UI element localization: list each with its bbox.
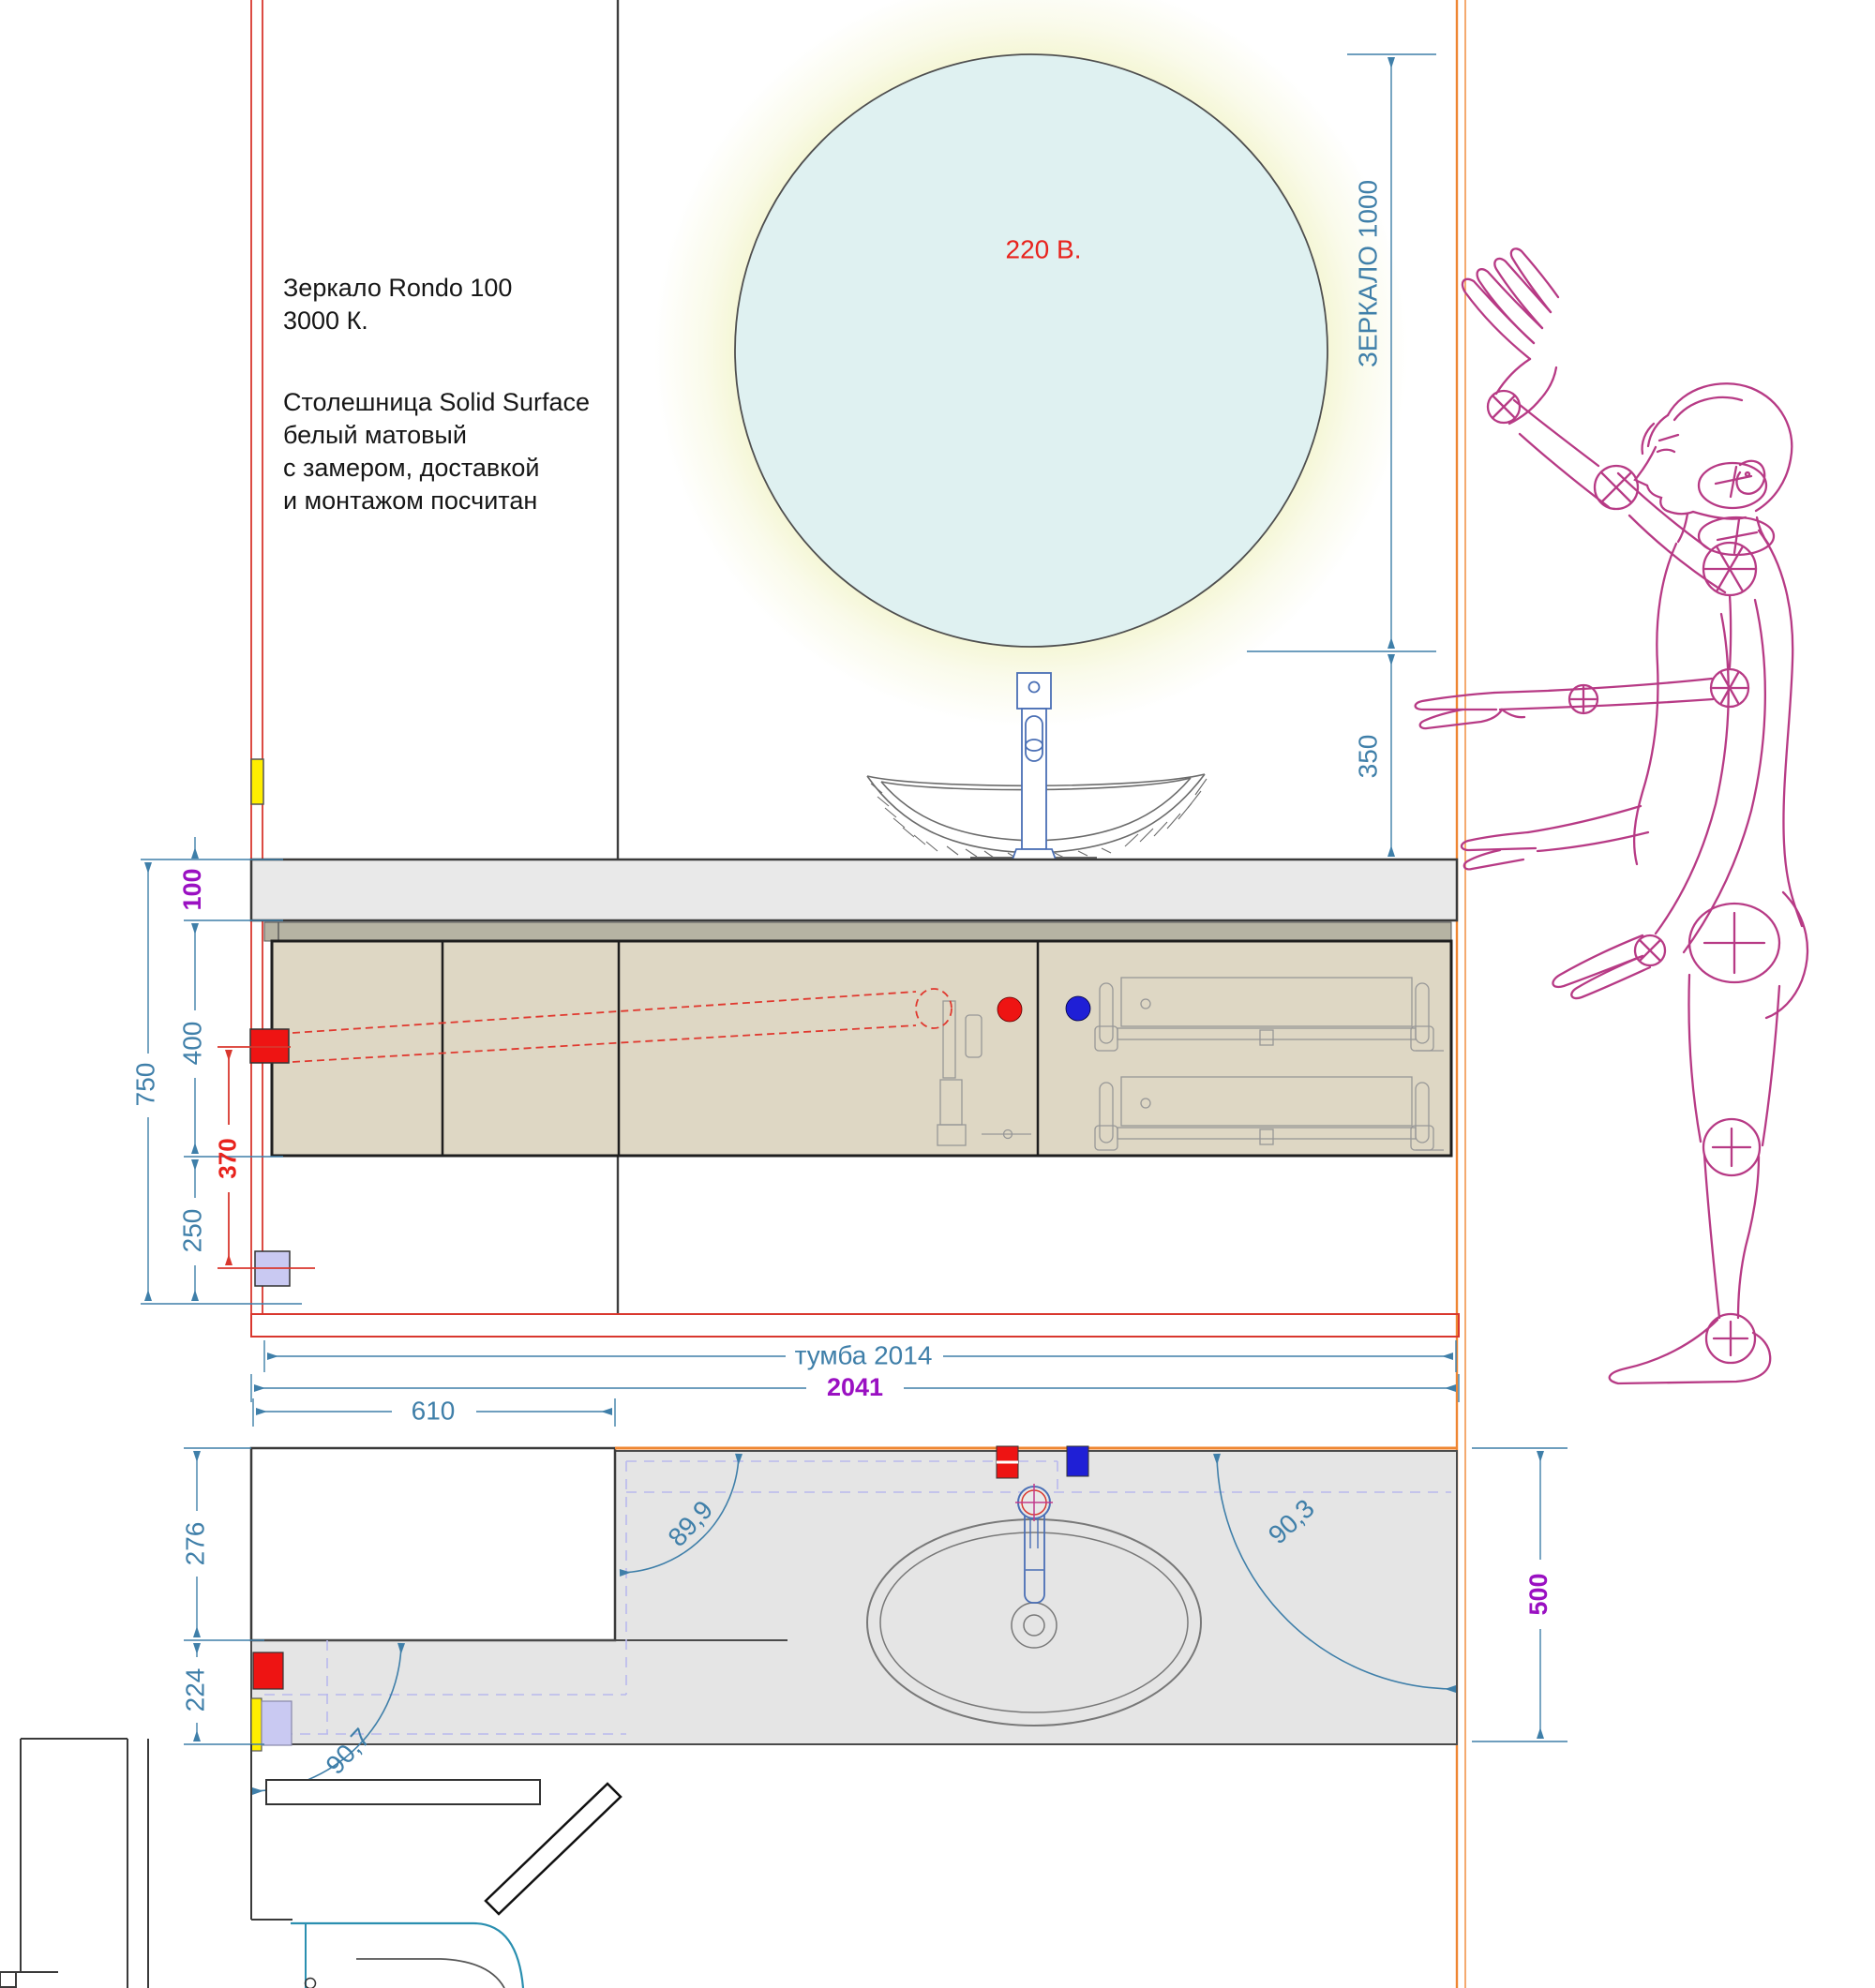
threshold-rail	[266, 1780, 540, 1804]
dim-label-610: 610	[412, 1398, 456, 1427]
dim-label-224: 224	[182, 1668, 211, 1712]
room-walls-plan	[0, 1739, 292, 1988]
socket-lilac-plan	[262, 1701, 292, 1745]
socket-yellow-plan	[251, 1698, 262, 1751]
dim-label-500: 500	[1525, 1573, 1553, 1615]
mannequin-figure	[1416, 248, 1807, 1383]
socket-blue-plan	[1067, 1446, 1088, 1476]
dim-label-400: 400	[179, 1022, 208, 1066]
socket-red-plan-left	[253, 1652, 283, 1689]
hot-water-dot	[997, 997, 1022, 1022]
round-mirror	[735, 54, 1327, 647]
dim-label-350: 350	[1355, 735, 1384, 779]
left-wall-lines	[251, 0, 262, 1314]
vanity-cabinet	[272, 941, 1451, 1156]
cold-water-dot	[1066, 996, 1090, 1021]
dim-label-276: 276	[182, 1522, 211, 1566]
note-countertop-spec: Столешница Solid Surface белый матовый с…	[283, 386, 590, 517]
dim-label-cabinet-width: тумба 2014	[795, 1342, 933, 1371]
dim-label-mirror-height: ЗЕРКАЛО 1000	[1355, 180, 1384, 367]
dim-label-100: 100	[179, 868, 207, 910]
floor-red-outline	[251, 1314, 1459, 1337]
cad-linework	[0, 0, 1875, 1988]
label-mirror-power: 220 В.	[1006, 236, 1082, 265]
mirror-with-backlight	[654, 0, 1408, 727]
socket-yellow	[251, 759, 263, 804]
dim-label-750: 750	[132, 1063, 161, 1107]
dim-label-2041: 2041	[827, 1374, 883, 1402]
right-wall-orange	[1457, 0, 1465, 1988]
niche-plan	[251, 1448, 615, 1640]
bathtub-plan	[291, 1923, 523, 1988]
socket-red	[250, 1029, 289, 1063]
note-mirror-spec: Зеркало Rondo 100 3000 К.	[283, 272, 512, 337]
faucet-elevation	[1012, 673, 1056, 859]
bathroom-vanity-drawing: Зеркало Rondo 100 3000 К. Столешница Sol…	[0, 0, 1875, 1988]
countertop-elevation	[251, 859, 1457, 920]
dim-label-370: 370	[215, 1138, 242, 1178]
under-counter-strip	[264, 922, 1451, 941]
dim-label-250: 250	[179, 1209, 208, 1253]
